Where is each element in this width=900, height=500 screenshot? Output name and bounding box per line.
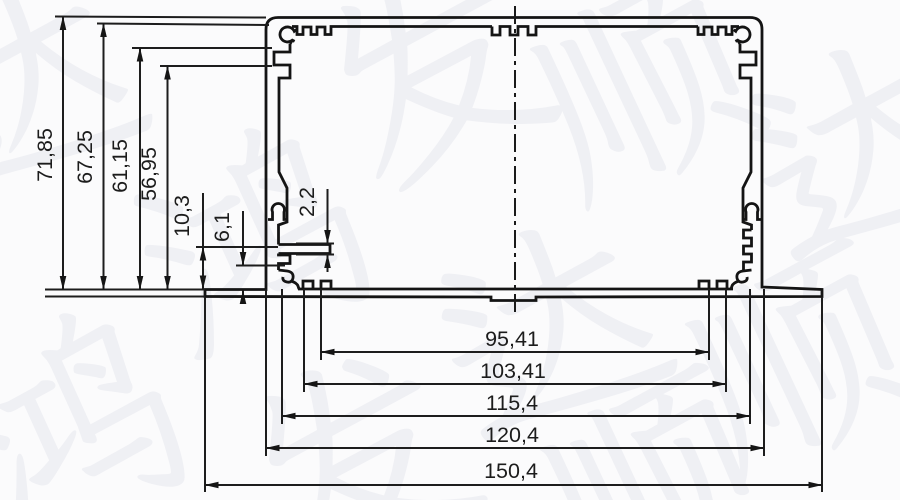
svg-text:120,4: 120,4 <box>485 423 539 447</box>
svg-text:2,2: 2,2 <box>295 187 319 217</box>
svg-text:103,41: 103,41 <box>480 359 546 383</box>
svg-text:150,4: 150,4 <box>484 459 538 483</box>
svg-text:61,15: 61,15 <box>108 139 132 193</box>
svg-text:95,41: 95,41 <box>485 327 539 351</box>
svg-text:67,25: 67,25 <box>73 130 97 184</box>
svg-text:6,1: 6,1 <box>210 212 234 242</box>
svg-text:71,85: 71,85 <box>33 128 57 182</box>
svg-text:56,95: 56,95 <box>137 147 161 201</box>
svg-text:115,4: 115,4 <box>486 391 538 415</box>
svg-text:10,3: 10,3 <box>170 195 194 237</box>
